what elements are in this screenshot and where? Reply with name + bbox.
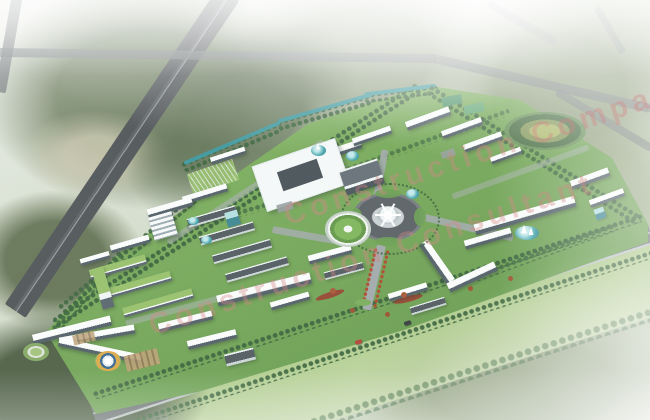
dome-pavilion	[95, 351, 121, 371]
tree-grove-circle	[500, 110, 590, 152]
roundabout-lawn-top	[375, 189, 401, 198]
round-greenroof-building	[325, 211, 371, 247]
roundabout-lawn-right	[414, 208, 426, 226]
pond-quad-1	[188, 217, 199, 225]
rust-tree-5	[468, 286, 473, 291]
pond-quad-2	[201, 236, 212, 244]
rust-tree-1	[330, 288, 336, 294]
entrance-median-lawn	[355, 299, 371, 306]
sail-pond-east	[515, 226, 539, 240]
west-round-plaza	[23, 343, 49, 361]
rust-tree-3	[350, 308, 355, 313]
aerial-campus-render: Construction Company Construction Consul…	[0, 0, 650, 420]
rust-tree-2	[401, 292, 407, 298]
roundabout-lawn-bottom	[375, 237, 401, 246]
pond-north-2	[346, 151, 359, 161]
pond-center	[406, 189, 419, 199]
rust-tree-4	[385, 312, 390, 317]
rust-tree-6	[508, 276, 513, 281]
